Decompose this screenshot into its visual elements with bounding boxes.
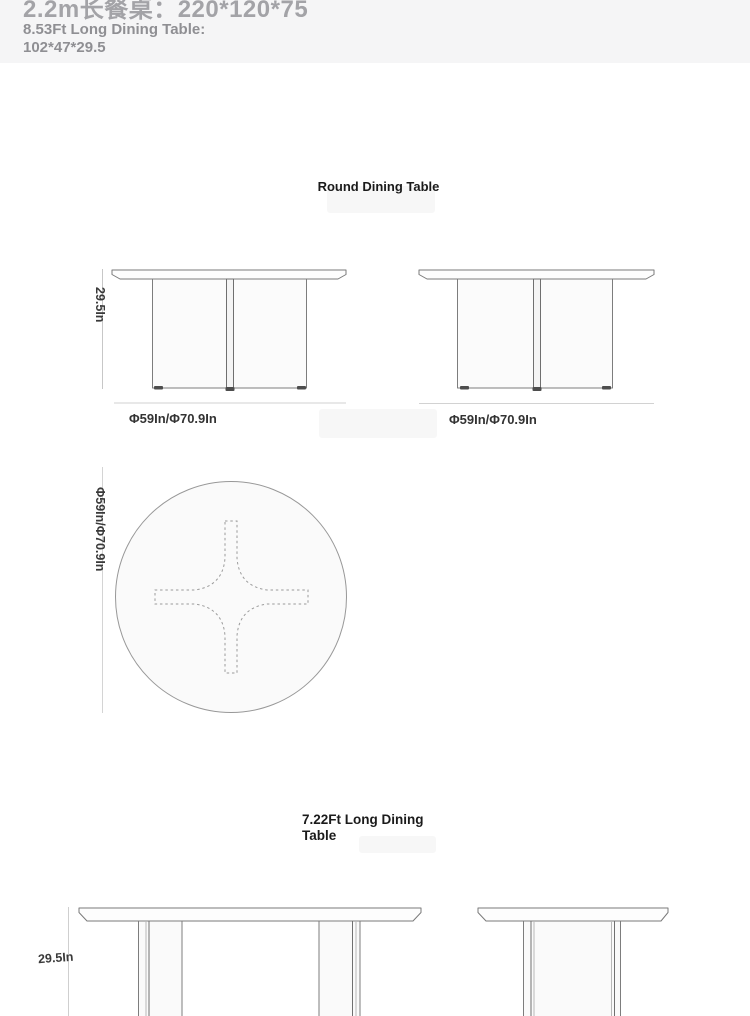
long-table-end-view-drawing	[478, 908, 668, 1016]
long-table-section-title: 7.22Ft Long Dining Table	[302, 812, 438, 844]
round-table-section-title: Round Dining Table	[0, 179, 750, 194]
diameter-dimension-label-round-front: Φ59In/Φ70.9In	[129, 411, 217, 426]
round-table-side-view-drawing	[419, 270, 654, 404]
round-table-top-view-drawing	[103, 467, 347, 713]
round-table-front-view-drawing	[103, 269, 347, 403]
product-detail-page: 2.2m长餐桌：220*120*75 8.53Ft Long Dining Ta…	[0, 0, 750, 1016]
dimension-diagram-canvas	[0, 0, 750, 1016]
height-dimension-label-round-front: 29.5In	[93, 287, 107, 322]
height-dimension-label-long-front: 29.5In	[38, 950, 74, 966]
diameter-dimension-label-round-side: Φ59In/Φ70.9In	[449, 412, 537, 427]
long-table-front-view-drawing	[69, 907, 422, 1016]
diameter-dimension-label-round-top: Φ59In/Φ70.9In	[93, 487, 107, 571]
